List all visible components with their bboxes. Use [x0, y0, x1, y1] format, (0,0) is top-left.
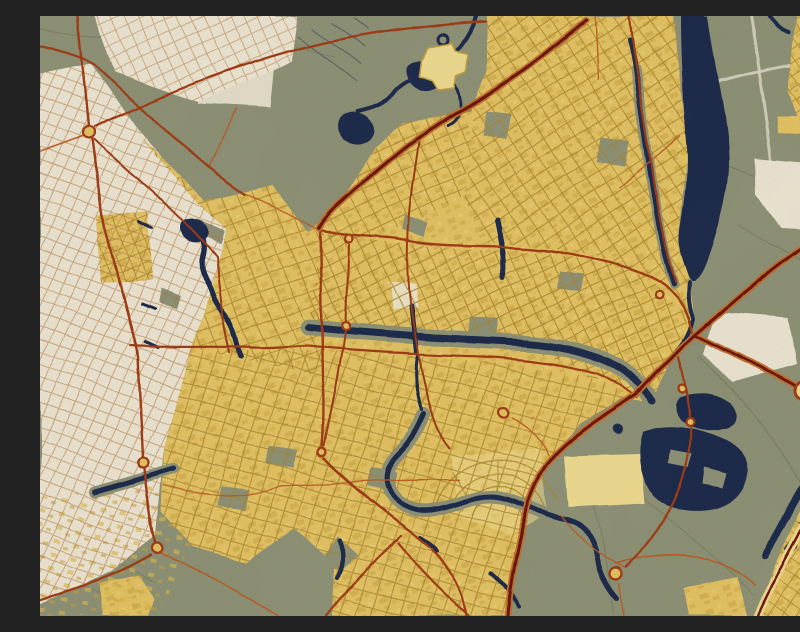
klimt-style-city-map	[40, 16, 800, 616]
canvas-grain-texture	[40, 16, 800, 616]
artwork-frame	[40, 16, 800, 616]
